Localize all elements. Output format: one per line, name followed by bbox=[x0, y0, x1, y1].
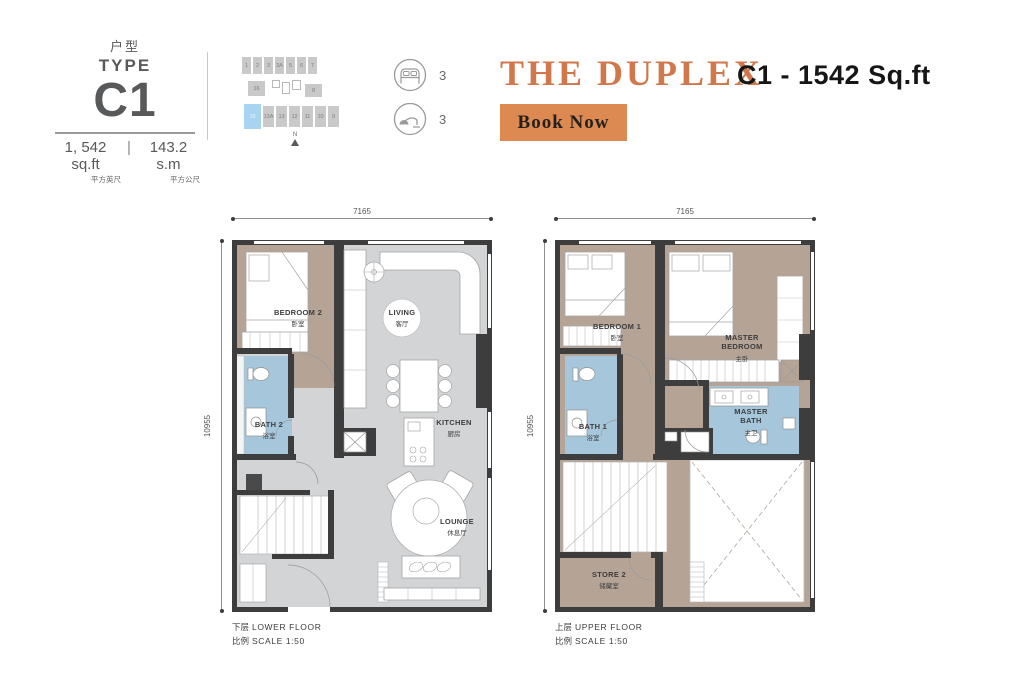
upper-dim-width: 7165 bbox=[555, 207, 815, 225]
area-separator: | bbox=[127, 139, 131, 156]
keyplan-core bbox=[282, 82, 290, 94]
keyplan-unit: 13A bbox=[262, 105, 275, 128]
type-label-cn: 户型 bbox=[50, 36, 200, 55]
keyplan-unit: 5 bbox=[285, 56, 296, 75]
book-now-button[interactable]: Book Now bbox=[500, 104, 627, 141]
north-arrow-icon bbox=[291, 139, 299, 146]
keyplan-unit: 6 bbox=[296, 56, 307, 75]
upper-floor-plan: BEDROOM 1 卧室 MASTER BEDROOM 主卧 BATH 1 浴室… bbox=[555, 240, 815, 612]
room-label-bedroom1: BEDROOM 1 卧室 bbox=[593, 322, 641, 342]
area-sqm: 143.2 s.m bbox=[137, 139, 200, 173]
keyplan-top-row: 1 2 3 3A 5 6 7 bbox=[241, 56, 318, 75]
room-label-master-bath: MASTER BATH 主卫 bbox=[727, 407, 775, 437]
room-label-master-bedroom: MASTER BEDROOM 主卧 bbox=[712, 333, 772, 363]
page-title: THE DUPLEX bbox=[500, 52, 763, 94]
room-label-lounge: LOUNGE 休息厅 bbox=[440, 517, 474, 537]
upper-floor-caption: 上层UPPER FLOOR 比例SCALE 1:50 bbox=[555, 620, 643, 648]
bedroom-count-value: 3 bbox=[439, 68, 446, 83]
keyplan-unit: 2 bbox=[252, 56, 263, 75]
keyplan-unit-highlighted: 15 bbox=[243, 103, 262, 130]
keyplan-unit: 3 bbox=[263, 56, 274, 75]
area-sqft: 1, 542 sq.ft bbox=[50, 139, 121, 173]
keyplan-unit: 12 bbox=[288, 105, 301, 128]
keyplan-unit: 3A bbox=[274, 56, 285, 75]
north-compass: N bbox=[288, 132, 302, 146]
bed-icon bbox=[393, 58, 427, 92]
type-divider bbox=[55, 132, 195, 134]
lower-floor-caption: 下层LOWER FLOOR 比例SCALE 1:50 bbox=[232, 620, 321, 648]
bathroom-count-value: 3 bbox=[439, 112, 446, 127]
keyplan-core bbox=[292, 80, 301, 90]
room-label-living: LIVING 客厅 bbox=[389, 308, 416, 328]
floor-plan-page: 户型 TYPE C1 1, 542 sq.ft 平方英尺 | 143.2 s.m… bbox=[0, 0, 1024, 683]
keyplan-unit: 9 bbox=[327, 105, 340, 128]
room-label-bedroom2: BEDROOM 2 卧室 bbox=[274, 308, 322, 328]
building-key-plan: 1 2 3 3A 5 6 7 16 8 15 13A 13 12 11 10 9… bbox=[232, 52, 364, 152]
keyplan-unit: 10 bbox=[314, 105, 327, 128]
room-label-bath2: BATH 2 浴室 bbox=[255, 420, 283, 440]
keyplan-unit: 1 bbox=[241, 56, 252, 75]
keyplan-unit: 16 bbox=[247, 80, 266, 97]
lower-dim-height: 10955 bbox=[202, 240, 222, 612]
bathroom-count: 3 bbox=[393, 102, 446, 136]
keyplan-unit: 8 bbox=[304, 83, 323, 98]
unit-type-code: C1 bbox=[50, 76, 200, 126]
lower-dim-width: 7165 bbox=[232, 207, 492, 225]
keyplan-core bbox=[272, 80, 280, 88]
unit-stats: 3 3 bbox=[393, 58, 446, 146]
lower-floor-plan: BEDROOM 2 卧室 LIVING 客厅 BATH 2 浴室 KITCHEN… bbox=[232, 240, 492, 612]
unit-size-subtitle: C1 - 1542 Sq.ft bbox=[737, 60, 931, 91]
keyplan-unit: 7 bbox=[307, 56, 318, 75]
upper-dim-height: 10955 bbox=[525, 240, 545, 612]
room-label-kitchen: KITCHEN 厨房 bbox=[436, 418, 471, 438]
keyplan-unit: 13 bbox=[275, 105, 288, 128]
area-sqft-cn: 平方英尺 bbox=[50, 174, 121, 185]
north-label: N bbox=[288, 132, 302, 138]
type-label-en: TYPE bbox=[50, 56, 200, 76]
keyplan-unit: 11 bbox=[301, 105, 314, 128]
unit-area: 1, 542 sq.ft 平方英尺 | 143.2 s.m 平方公尺 bbox=[50, 139, 200, 185]
area-sqm-cn: 平方公尺 bbox=[137, 174, 200, 185]
bedroom-count: 3 bbox=[393, 58, 446, 92]
header-divider bbox=[207, 52, 208, 140]
keyplan-bottom-row: 15 13A 13 12 11 10 9 bbox=[243, 103, 340, 130]
room-label-bath1: BATH 1 浴室 bbox=[579, 422, 607, 442]
room-label-store2: STORE 2 储藏室 bbox=[592, 570, 626, 590]
shower-icon bbox=[393, 102, 427, 136]
unit-type-block: 户型 TYPE C1 1, 542 sq.ft 平方英尺 | 143.2 s.m… bbox=[50, 36, 200, 185]
